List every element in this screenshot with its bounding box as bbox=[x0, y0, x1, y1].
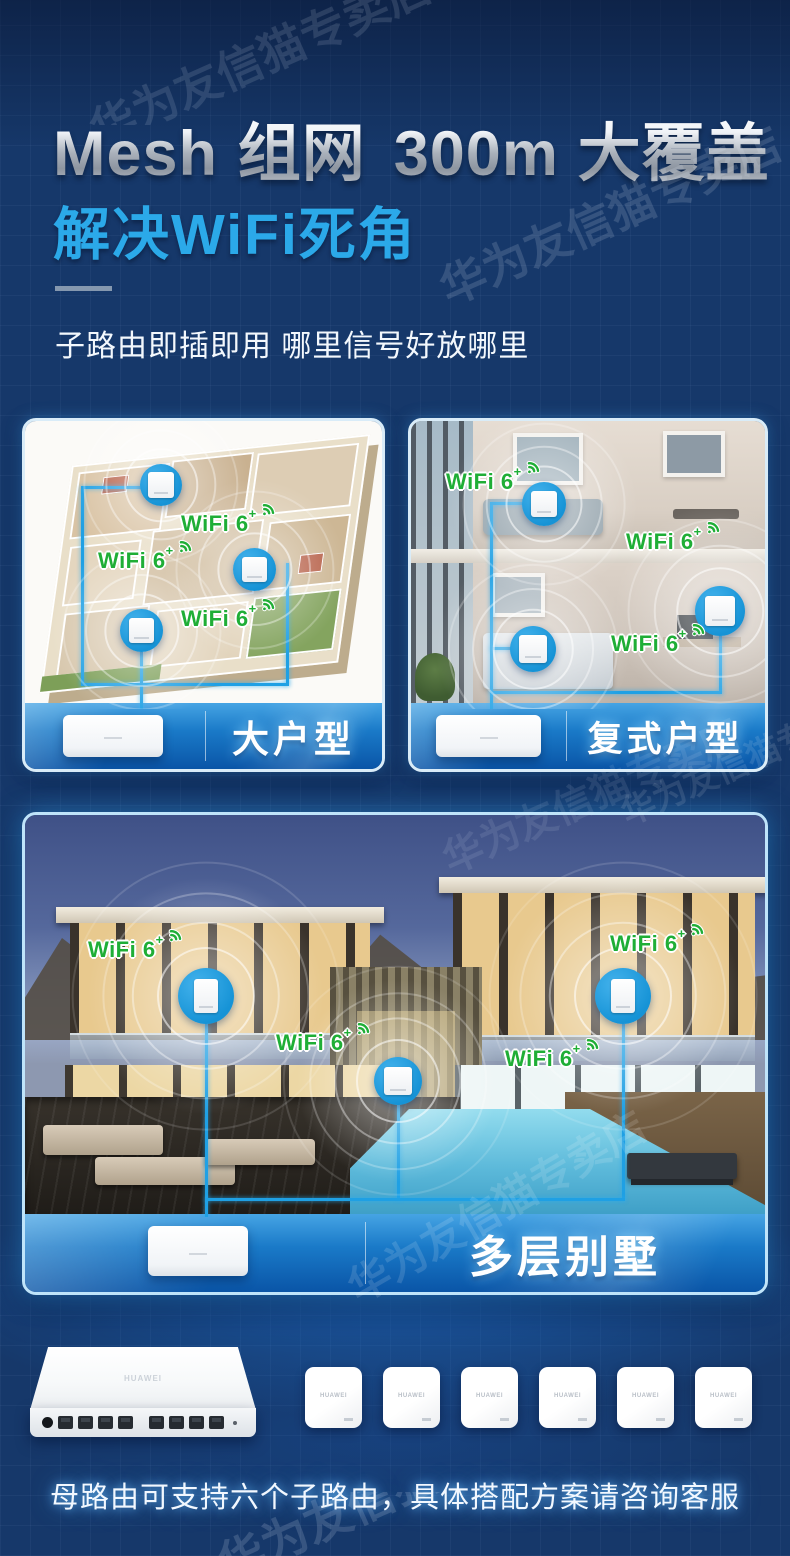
lounger bbox=[205, 1139, 315, 1165]
duplex-image: WiFi 6+ WiFi 6+ WiFi 6+ bbox=[411, 421, 765, 709]
panel-indicator bbox=[578, 1418, 587, 1421]
card-label-bar: 复式户型 bbox=[411, 703, 765, 769]
brand-logo: HUAWEI bbox=[383, 1393, 440, 1399]
tagline: 子路由即插即用 哪里信号好放哪里 bbox=[55, 321, 529, 365]
card-villa: WiFi 6+ WiFi 6+ WiFi 6+ WiFi 6+ 多层别墅 bbox=[22, 812, 768, 1295]
ethernet-port bbox=[58, 1416, 73, 1429]
floorplan-image: WiFi 6+ WiFi 6+ WiFi 6+ bbox=[25, 421, 382, 709]
brand-logo: HUAWEI bbox=[124, 1374, 162, 1383]
title-part1: 组网 bbox=[238, 119, 366, 189]
wifi6-label: WiFi 6+ bbox=[98, 548, 193, 574]
sub-router-panel: HUAWEI bbox=[383, 1367, 440, 1428]
wifi-signal-icon bbox=[580, 1033, 602, 1055]
mesh-link-line bbox=[205, 1198, 625, 1201]
router-device bbox=[233, 548, 276, 591]
ethernet-port bbox=[209, 1416, 224, 1429]
wifi-signal-icon bbox=[521, 456, 543, 478]
ethernet-port bbox=[189, 1416, 204, 1429]
wifi-signal-icon bbox=[256, 498, 278, 520]
promo-page: 华为友信猫专卖店 华为友信猫专卖店 华为友信猫专卖店 华为友信猫专卖店 华为友信… bbox=[0, 0, 790, 1556]
router-node bbox=[510, 626, 556, 672]
lounger bbox=[43, 1125, 163, 1155]
outdoor-dining-set bbox=[627, 1153, 737, 1179]
wifi6-label: WiFi 6+ bbox=[611, 631, 706, 657]
title-part3: 大覆盖 bbox=[578, 119, 770, 189]
router-node bbox=[595, 968, 651, 1024]
router-node bbox=[374, 1057, 422, 1105]
villa-image: WiFi 6+ WiFi 6+ WiFi 6+ WiFi 6+ bbox=[25, 815, 765, 1217]
page-title: Mesh+组网300m2大覆盖 bbox=[53, 103, 770, 194]
card-label: 大户型 bbox=[205, 703, 382, 769]
ethernet-port bbox=[118, 1416, 133, 1429]
sub-router-panel: HUAWEI bbox=[695, 1367, 752, 1428]
panel-indicator bbox=[500, 1418, 509, 1421]
card-label-bar: 多层别墅 bbox=[25, 1214, 765, 1292]
sub-router-panel: HUAWEI bbox=[617, 1367, 674, 1428]
footer-note: 母路由可支持六个子路由，具体搭配方案请咨询客服 bbox=[0, 1474, 790, 1516]
ethernet-port bbox=[149, 1416, 164, 1429]
mother-router-ports bbox=[30, 1408, 256, 1437]
ethernet-port bbox=[169, 1416, 184, 1429]
router-faceplate bbox=[384, 1067, 413, 1096]
ethernet-port bbox=[98, 1416, 113, 1429]
card-label: 多层别墅 bbox=[365, 1214, 765, 1292]
router-device bbox=[374, 1057, 422, 1105]
router-node bbox=[140, 464, 182, 506]
card-label-bar: 大户型 bbox=[25, 703, 382, 769]
panel-indicator bbox=[344, 1418, 353, 1421]
title-brand-sup: + bbox=[218, 98, 238, 134]
mother-router-thumb bbox=[436, 715, 541, 757]
router-faceplate bbox=[194, 979, 219, 1014]
router-node bbox=[120, 609, 163, 652]
router-faceplate bbox=[242, 557, 268, 583]
router-node bbox=[178, 968, 234, 1024]
panel-indicator bbox=[656, 1418, 665, 1421]
wifi-signal-icon bbox=[163, 924, 185, 946]
brand-logo: HUAWEI bbox=[617, 1393, 674, 1399]
router-device bbox=[178, 968, 234, 1024]
ethernet-port bbox=[78, 1416, 93, 1429]
mother-router-thumb bbox=[63, 715, 163, 757]
router-faceplate bbox=[519, 635, 547, 663]
header-divider bbox=[55, 286, 112, 291]
title-superscript-2: 2 bbox=[559, 98, 578, 134]
title-part2: 300m bbox=[394, 119, 559, 189]
brand-logo: HUAWEI bbox=[461, 1393, 518, 1399]
router-faceplate bbox=[705, 596, 735, 626]
sub-router-panel: HUAWEI bbox=[305, 1367, 362, 1428]
card-duplex: WiFi 6+ WiFi 6+ WiFi 6+ 复式户型 bbox=[408, 418, 768, 772]
mother-router-thumb bbox=[148, 1226, 248, 1276]
wifi6-label: WiFi 6+ bbox=[505, 1046, 600, 1072]
mother-router: HUAWEI bbox=[30, 1347, 256, 1437]
wifi6-label: WiFi 6+ bbox=[276, 1030, 371, 1056]
sub-router-panels: HUAWEI HUAWEI HUAWEI HUAWEI HUAWEI HUAWE… bbox=[305, 1367, 752, 1428]
router-device bbox=[140, 464, 182, 506]
mother-router-top: HUAWEI bbox=[30, 1347, 256, 1410]
panel-indicator bbox=[422, 1418, 431, 1421]
wifi-signal-icon bbox=[351, 1017, 373, 1039]
wifi-signal-icon bbox=[686, 618, 708, 640]
card-large-home: WiFi 6+ WiFi 6+ WiFi 6+ 大户型 bbox=[22, 418, 385, 772]
wifi6-label: WiFi 6+ bbox=[181, 606, 276, 632]
wifi6-label: WiFi 6+ bbox=[610, 931, 705, 957]
router-device bbox=[510, 626, 556, 672]
wifi-signal-icon bbox=[685, 918, 707, 940]
wifi6-label: WiFi 6+ bbox=[88, 937, 183, 963]
title-brand: Mesh bbox=[53, 119, 218, 189]
power-socket bbox=[42, 1417, 53, 1428]
router-faceplate bbox=[129, 618, 155, 644]
router-device bbox=[595, 968, 651, 1024]
wifi-signal-icon bbox=[256, 593, 278, 615]
brand-logo: HUAWEI bbox=[305, 1393, 362, 1399]
wifi-signal-icon bbox=[173, 535, 195, 557]
wifi6-label: WiFi 6+ bbox=[181, 511, 276, 537]
brand-logo: HUAWEI bbox=[695, 1393, 752, 1399]
router-faceplate bbox=[148, 472, 173, 497]
panel-indicator bbox=[734, 1418, 743, 1421]
brand-logo: HUAWEI bbox=[539, 1393, 596, 1399]
wifi-signal-icon bbox=[701, 516, 723, 538]
wifi6-label: WiFi 6+ bbox=[626, 529, 721, 555]
wall-art bbox=[663, 431, 725, 477]
reset-hole bbox=[233, 1421, 237, 1425]
card-label: 复式户型 bbox=[566, 703, 765, 769]
page-subtitle: 解决WiFi死角 bbox=[53, 189, 417, 271]
router-device bbox=[120, 609, 163, 652]
wifi6-label: WiFi 6+ bbox=[446, 469, 541, 495]
router-node bbox=[233, 548, 276, 591]
sub-router-panel: HUAWEI bbox=[539, 1367, 596, 1428]
router-faceplate bbox=[611, 979, 636, 1014]
sub-router-panel: HUAWEI bbox=[461, 1367, 518, 1428]
